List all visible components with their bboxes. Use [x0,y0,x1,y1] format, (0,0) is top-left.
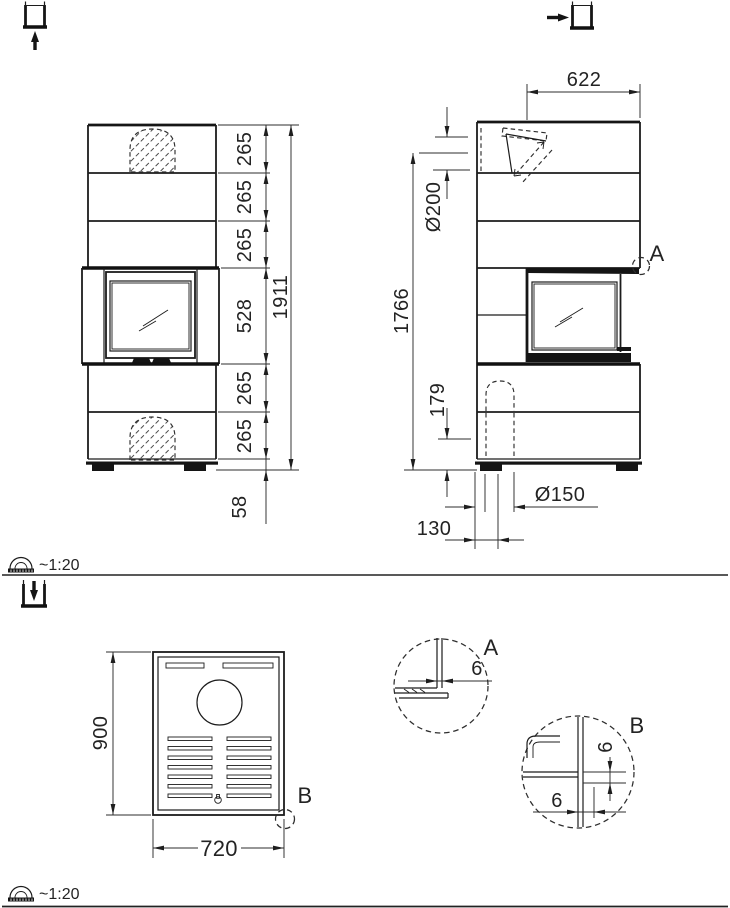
detail-b-label: B [630,713,645,738]
stove-foot [616,465,638,472]
top-view [153,652,284,815]
vent-grille [168,737,271,798]
dim-front-segment-6: 265 [234,419,256,454]
top-view-icon [21,580,47,607]
firebox-door-side [527,282,631,362]
air-inlet-hidden [486,381,514,458]
arrow-up-icon [31,31,39,50]
scale-upper-label: ~1:20 [39,557,80,574]
dim-detail-b-horizontal-gap: 6 [551,790,563,812]
dim-top-width: 720 [200,836,238,861]
glass-reflection [560,308,583,322]
stove-foot [480,465,502,472]
dim-detail-a-gap: 6 [471,658,483,680]
scale-indicator-lower: ~1:20 [8,886,80,903]
scale-indicator-upper: ~1:20 [8,557,80,574]
glass-reflection [143,310,168,326]
dim-front-segment-1: 265 [234,132,256,167]
dim-side-air-inlet-diameter: Ø150 [535,484,586,506]
dim-side-flue-center-height: 1766 [391,288,413,334]
dim-side-flue-diameter: Ø200 [423,182,445,233]
arrow-right-icon [547,14,569,22]
flue-opening-top [197,680,242,725]
technical-drawing-canvas: 265 265 265 528 265 265 1911 58 [0,0,730,908]
dim-front-plinth-height: 58 [229,495,251,518]
flue-connection-hidden [130,129,175,172]
dim-front-segment-5: 265 [234,371,256,406]
front-view [82,125,219,471]
door-handle [617,347,631,351]
dim-side-air-inlet-height: 179 [427,383,449,418]
dim-front-segment-2: 265 [234,180,256,215]
top-slot [166,663,204,668]
detail-a-label: A [484,635,499,660]
top-slot [223,663,273,668]
stove-technical-drawing-page: 265 265 265 528 265 265 1911 58 [0,0,730,908]
detail-b: 6 6 B [522,713,644,828]
dim-side-flue-offset: 622 [567,69,602,91]
detail-a-marker-circle [633,258,650,275]
stove-foot [92,465,114,472]
dim-front-segment-4: 528 [234,299,256,334]
dim-side-air-inlet-offset: 130 [417,518,452,540]
keyhole-fitting [215,795,222,804]
detail-a-marker-label: A [650,241,665,266]
air-inlet-hidden [130,417,175,460]
dim-front-overall-height: 1911 [270,275,292,320]
arrow-down-icon [30,581,38,601]
protractor-icon [8,558,34,573]
door-top-frame [527,268,639,274]
flue-outlet-options-hidden [481,128,552,183]
front-view-dimensions: 265 265 265 528 265 265 1911 58 [216,125,299,524]
detail-a: 6 A [394,635,499,733]
scale-lower-label: ~1:20 [39,886,80,903]
stove-foot [184,465,206,472]
detail-b-marker-circle [276,810,295,829]
side-view-icon [547,2,594,30]
protractor-icon [8,887,34,902]
side-view [475,122,642,471]
dim-top-depth: 900 [90,716,112,751]
firebox-door-front [106,272,195,364]
detail-b-marker-label: B [298,783,313,808]
dim-detail-b-vertical-gap: 6 [595,741,617,753]
dim-front-segment-3: 265 [234,228,256,263]
front-view-icon [23,2,47,51]
